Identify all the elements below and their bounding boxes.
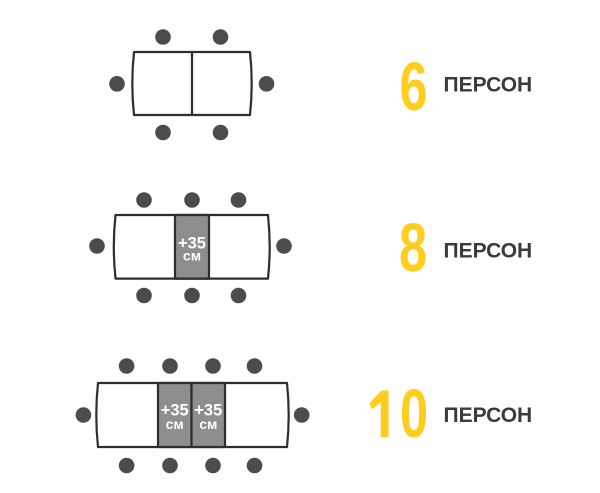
svg-text:ПЕРСОН: ПЕРСОН [444,404,533,427]
svg-text:ПЕРСОН: ПЕРСОН [444,74,533,97]
svg-text:см: см [166,416,184,432]
svg-text:ПЕРСОН: ПЕРСОН [444,240,533,263]
svg-text:8: 8 [399,209,427,285]
svg-text:см: см [183,248,201,264]
svg-text:см: см [199,416,217,432]
svg-text:0: 0 [400,375,428,451]
svg-text:6: 6 [399,48,427,124]
